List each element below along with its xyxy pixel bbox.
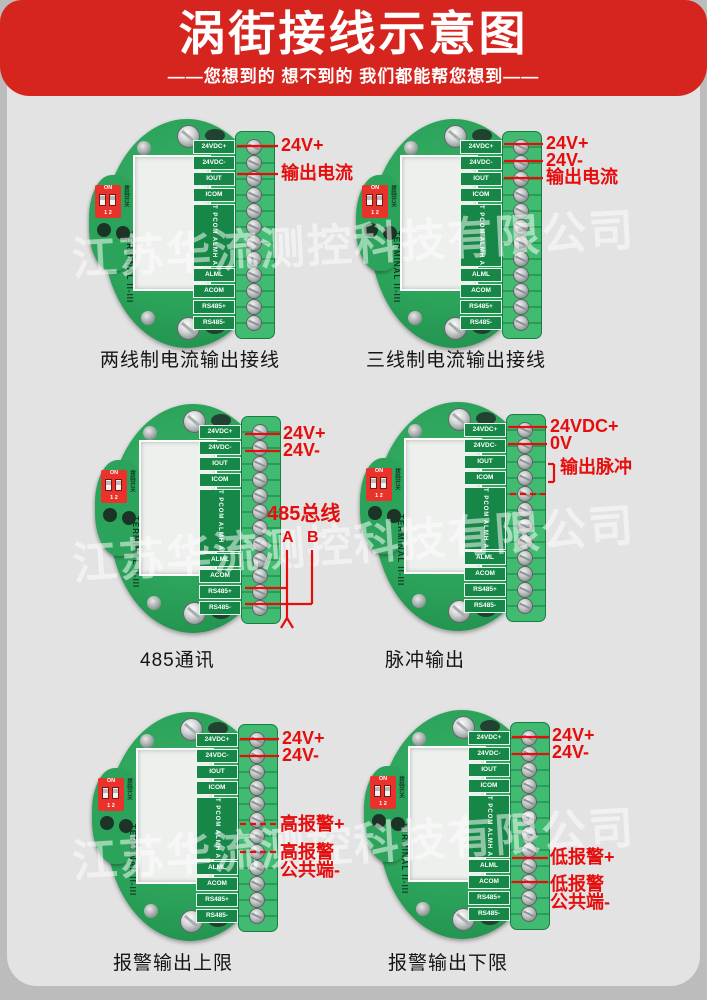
dip-on-label: ON [101,470,127,477]
mount-hole-bottom-left [141,311,155,325]
dip-toggle-2 [115,479,122,491]
terminal-screw [517,454,533,470]
terminal-screw [513,187,529,203]
pad-circle-1 [368,506,382,520]
terminal-side-label: TERMINAL II-III [131,516,140,588]
terminal-screw [513,139,529,155]
terminal-label: RS485+ [468,891,510,905]
terminal-screw [246,203,262,219]
terminal-label-mid-text: POUT PCOM ALMH ACOM [482,487,488,550]
board-caption: 两线制电流输出接线 [100,345,280,372]
terminal-screw [513,203,529,219]
terminal-screw [252,600,268,616]
terminal-screw [246,299,262,315]
terminal-screw [252,568,268,584]
terminal-screw [246,219,262,235]
terminal-screw [517,582,533,598]
wiring-annotation: 24V- [282,746,319,765]
dip-number-label: 1 2 [370,801,396,808]
terminal-label: IOUT [193,172,235,186]
dip-number-label: 1 2 [101,495,127,502]
terminal-screw [521,874,537,890]
dip-switch: ON 1 2 [366,468,392,501]
terminal-label: IOUT [196,765,238,779]
terminal-screw [252,424,268,440]
terminal-label: ALML [464,551,506,565]
pad-circle-1 [364,223,378,237]
dip-switch: ON 1 2 [362,185,388,218]
terminal-label: ACOM [468,875,510,889]
terminal-screw [252,456,268,472]
wiring-annotation: 公共端- [550,893,610,912]
dip-side-label: 拨码开关 [122,185,130,207]
terminal-screw [517,534,533,550]
terminal-screw [252,440,268,456]
dip-on-label: ON [366,468,392,475]
terminal-screw [517,438,533,454]
terminal-screw [246,267,262,283]
terminal-screw [249,892,265,908]
terminal-screw [249,780,265,796]
terminal-screw [246,187,262,203]
terminal-label: 24VDC- [460,156,502,170]
terminal-screw [517,502,533,518]
terminal-screw [252,520,268,536]
terminal-screw [521,858,537,874]
terminal-screw [513,235,529,251]
dip-on-label: ON [95,185,121,192]
wiring-annotation: 485总线 [267,504,340,525]
terminal-label: ALML [468,859,510,873]
terminal-screw [521,826,537,842]
dip-toggle-1 [370,477,377,489]
wiring-board-2: ON 1 2 拨码开关 TERMINAL II-III POUT PCOM AL… [356,119,626,384]
terminal-label-mid-text: POUT PCOM ALMH ACOM [478,204,484,267]
terminal-label: 24VDC- [193,156,235,170]
dip-side-label: 拨码开关 [128,470,136,492]
dip-toggle-1 [374,785,381,797]
terminal-screw [517,470,533,486]
wiring-annotation: 输出脉冲 [560,458,632,477]
terminal-label: ACOM [199,569,241,583]
terminal-label: RS485+ [460,300,502,314]
terminal-label: RS485- [468,907,510,921]
wiring-board-1: ON 1 2 拨码开关 TERMINAL II-III POUT PCOM AL… [89,119,359,384]
terminal-label: RS485- [193,316,235,330]
terminal-label: RS485+ [196,893,238,907]
terminal-screw [513,283,529,299]
terminal-screw [513,219,529,235]
terminal-screw [517,598,533,614]
terminal-screw [521,778,537,794]
terminal-screw [249,748,265,764]
dip-switch: ON 1 2 [95,185,121,218]
terminal-label: IOUT [468,763,510,777]
terminal-screw [249,796,265,812]
terminal-label: RS485+ [193,300,235,314]
wiring-annotation: B [307,530,319,547]
terminal-label: ICOM [464,471,506,485]
terminal-label: 24VDC- [464,439,506,453]
terminal-label: IOUT [199,457,241,471]
terminal-screw [246,139,262,155]
wiring-board-4: ON 1 2 拨码开关 TERMINAL II-III POUT PCOM AL… [360,402,630,667]
mount-hole-bottom-left [416,902,430,916]
terminal-label: ICOM [468,779,510,793]
terminal-label-mid-text: POUT PCOM ALMH ACOM [214,797,220,860]
dip-toggle-1 [366,194,373,206]
mount-hole-top-left [412,732,426,746]
terminal-screw [249,764,265,780]
board-caption: 485通讯 [140,645,215,672]
terminal-label-mid-text: POUT PCOM ALMH ACOM [486,795,492,858]
wiring-annotation: 24V- [283,441,320,460]
terminal-label: ICOM [196,781,238,795]
terminal-side-label: TERMINAL II-III [400,822,409,894]
pad-circle-1 [372,814,386,828]
terminal-label: ACOM [193,284,235,298]
terminal-label: ICOM [193,188,235,202]
terminal-screw [513,171,529,187]
board-caption: 报警输出上限 [113,948,233,975]
mount-hole-bottom-left [144,904,158,918]
terminal-screw [249,844,265,860]
terminal-label: 24VDC- [199,441,241,455]
terminal-label-mid-text: POUT PCOM ALMH ACOM [217,489,223,552]
terminal-label: 24VDC- [468,747,510,761]
terminal-label: RS485+ [464,583,506,597]
dip-number-label: 1 2 [366,493,392,500]
dip-toggle-1 [105,479,112,491]
terminal-label: RS485+ [199,585,241,599]
terminal-screw [521,810,537,826]
terminal-label: 24VDC- [196,749,238,763]
dip-on-label: ON [98,778,124,785]
mount-hole-top-left [408,424,422,438]
mount-hole-top-left [404,141,418,155]
wiring-annotation: 0V [550,434,572,453]
terminal-screw [521,890,537,906]
terminal-screw [249,812,265,828]
dip-side-label: 拨码开关 [125,778,133,800]
mount-hole-bottom-left [147,596,161,610]
terminal-screw [517,518,533,534]
terminal-screw [249,876,265,892]
terminal-label-mid-vertical: POUT PCOM ALMH ACOM [468,795,510,858]
dip-number-label: 1 2 [362,210,388,217]
terminal-label: ICOM [199,473,241,487]
dip-side-label: 拨码开关 [393,468,401,490]
terminal-label: 24VDC+ [464,423,506,437]
terminal-screw [517,566,533,582]
dip-switch: ON 1 2 [370,776,396,809]
terminal-screw [246,251,262,267]
terminal-label: 24VDC+ [196,733,238,747]
pad-circle-1 [103,508,117,522]
dip-toggle-2 [384,785,391,797]
terminal-screw [521,794,537,810]
terminal-screw [252,552,268,568]
terminal-screw [513,267,529,283]
dip-toggle-1 [102,787,109,799]
terminal-label-mid-vertical: POUT PCOM ALMH ACOM [464,487,506,550]
terminal-label-mid-text: POUT PCOM ALMH ACOM [211,204,217,267]
terminal-screw [246,155,262,171]
terminal-side-label: TERMINAL II-III [396,514,405,586]
wiring-annotation: 公共端- [280,861,340,880]
terminal-screw [521,730,537,746]
terminal-label-mid-vertical: POUT PCOM ALMH ACOM [196,797,238,860]
terminal-label-mid-vertical: POUT PCOM ALMH ACOM [199,489,241,552]
page-subtitle: ——您想到的 想不到的 我们都能帮您想到—— [0,62,707,87]
terminal-screw [517,550,533,566]
wiring-annotation: 24V+ [281,136,324,155]
terminal-screw [513,251,529,267]
infographic-page: 涡街接线示意图 ——您想到的 想不到的 我们都能帮您想到—— ON 1 2 拨码… [0,0,707,1000]
terminal-screw [246,235,262,251]
terminal-label: 24VDC+ [193,140,235,154]
terminal-label: RS485- [196,909,238,923]
wiring-board-3: ON 1 2 拨码开关 TERMINAL II-III POUT PCOM AL… [95,404,365,669]
board-caption: 报警输出下限 [388,948,508,975]
terminal-screw [249,860,265,876]
mount-hole-bottom-left [408,311,422,325]
dip-toggle-2 [380,477,387,489]
terminal-screw [246,315,262,331]
terminal-side-label: TERMINAL II-III [392,231,401,303]
dip-toggle-1 [99,194,106,206]
terminal-screw [517,486,533,502]
wiring-annotation: 低报警+ [550,848,615,867]
board-caption: 三线制电流输出接线 [366,345,546,372]
terminal-screw [513,315,529,331]
dip-on-label: ON [362,185,388,192]
dip-switch: ON 1 2 [101,470,127,503]
terminal-label: 24VDC+ [199,425,241,439]
wiring-annotation: 24V- [552,743,589,762]
dip-side-label: 拨码开关 [397,776,405,798]
wiring-annotation: 输出电流 [281,164,353,183]
terminal-screw [249,732,265,748]
board-caption: 脉冲输出 [385,645,465,672]
terminal-label: 24VDC+ [468,731,510,745]
dip-toggle-2 [376,194,383,206]
terminal-side-label: TERMINAL II-III [125,231,134,303]
terminal-screw [521,762,537,778]
terminal-screw [252,536,268,552]
terminal-screw [249,908,265,924]
page-title: 涡街接线示意图 [0,8,707,60]
dip-number-label: 1 2 [95,210,121,217]
terminal-screw [513,155,529,171]
mount-hole-top-left [140,734,154,748]
terminal-screw [246,171,262,187]
terminal-screw [252,504,268,520]
terminal-label-mid-vertical: POUT PCOM ALMH ACOM [193,204,235,267]
terminal-label: ALML [196,861,238,875]
terminal-label: ALML [193,268,235,282]
mount-hole-top-left [137,141,151,155]
pad-circle-1 [97,223,111,237]
terminal-label: IOUT [460,172,502,186]
dip-toggle-2 [112,787,119,799]
terminal-side-label: TERMINAL II-III [128,824,137,896]
dip-side-label: 拨码开关 [389,185,397,207]
terminal-label: ALML [460,268,502,282]
dip-switch: ON 1 2 [98,778,124,811]
wiring-annotation: A [282,530,294,547]
terminal-screw [521,746,537,762]
terminal-screw [521,842,537,858]
terminal-label: RS485- [460,316,502,330]
terminal-label: RS485- [464,599,506,613]
wiring-annotation: 高报警+ [280,815,345,834]
terminal-screw [521,906,537,922]
wiring-annotation: 输出电流 [546,168,618,187]
dip-on-label: ON [370,776,396,783]
terminal-screw [513,299,529,315]
terminal-label: ALML [199,553,241,567]
terminal-screw [517,422,533,438]
terminal-label: ACOM [460,284,502,298]
wiring-board-5: ON 1 2 拨码开关 TERMINAL II-III POUT PCOM AL… [92,712,362,977]
terminal-screw [252,472,268,488]
terminal-label-mid-vertical: POUT PCOM ALMH ACOM [460,204,502,267]
header-banner: 涡街接线示意图 ——您想到的 想不到的 我们都能帮您想到—— [0,0,707,96]
wiring-board-6: ON 1 2 拨码开关 TERMINAL II-III POUT PCOM AL… [364,710,634,975]
terminal-screw [246,283,262,299]
terminal-label: 24VDC+ [460,140,502,154]
dip-number-label: 1 2 [98,803,124,810]
terminal-label: IOUT [464,455,506,469]
terminal-screw [249,828,265,844]
terminal-screw [252,584,268,600]
terminal-label: ICOM [460,188,502,202]
mount-hole-bottom-left [412,594,426,608]
terminal-screw [252,488,268,504]
mount-hole-top-left [143,426,157,440]
terminal-label: RS485- [199,601,241,615]
terminal-label: ACOM [464,567,506,581]
dip-toggle-2 [109,194,116,206]
pad-circle-1 [100,816,114,830]
terminal-label: ACOM [196,877,238,891]
